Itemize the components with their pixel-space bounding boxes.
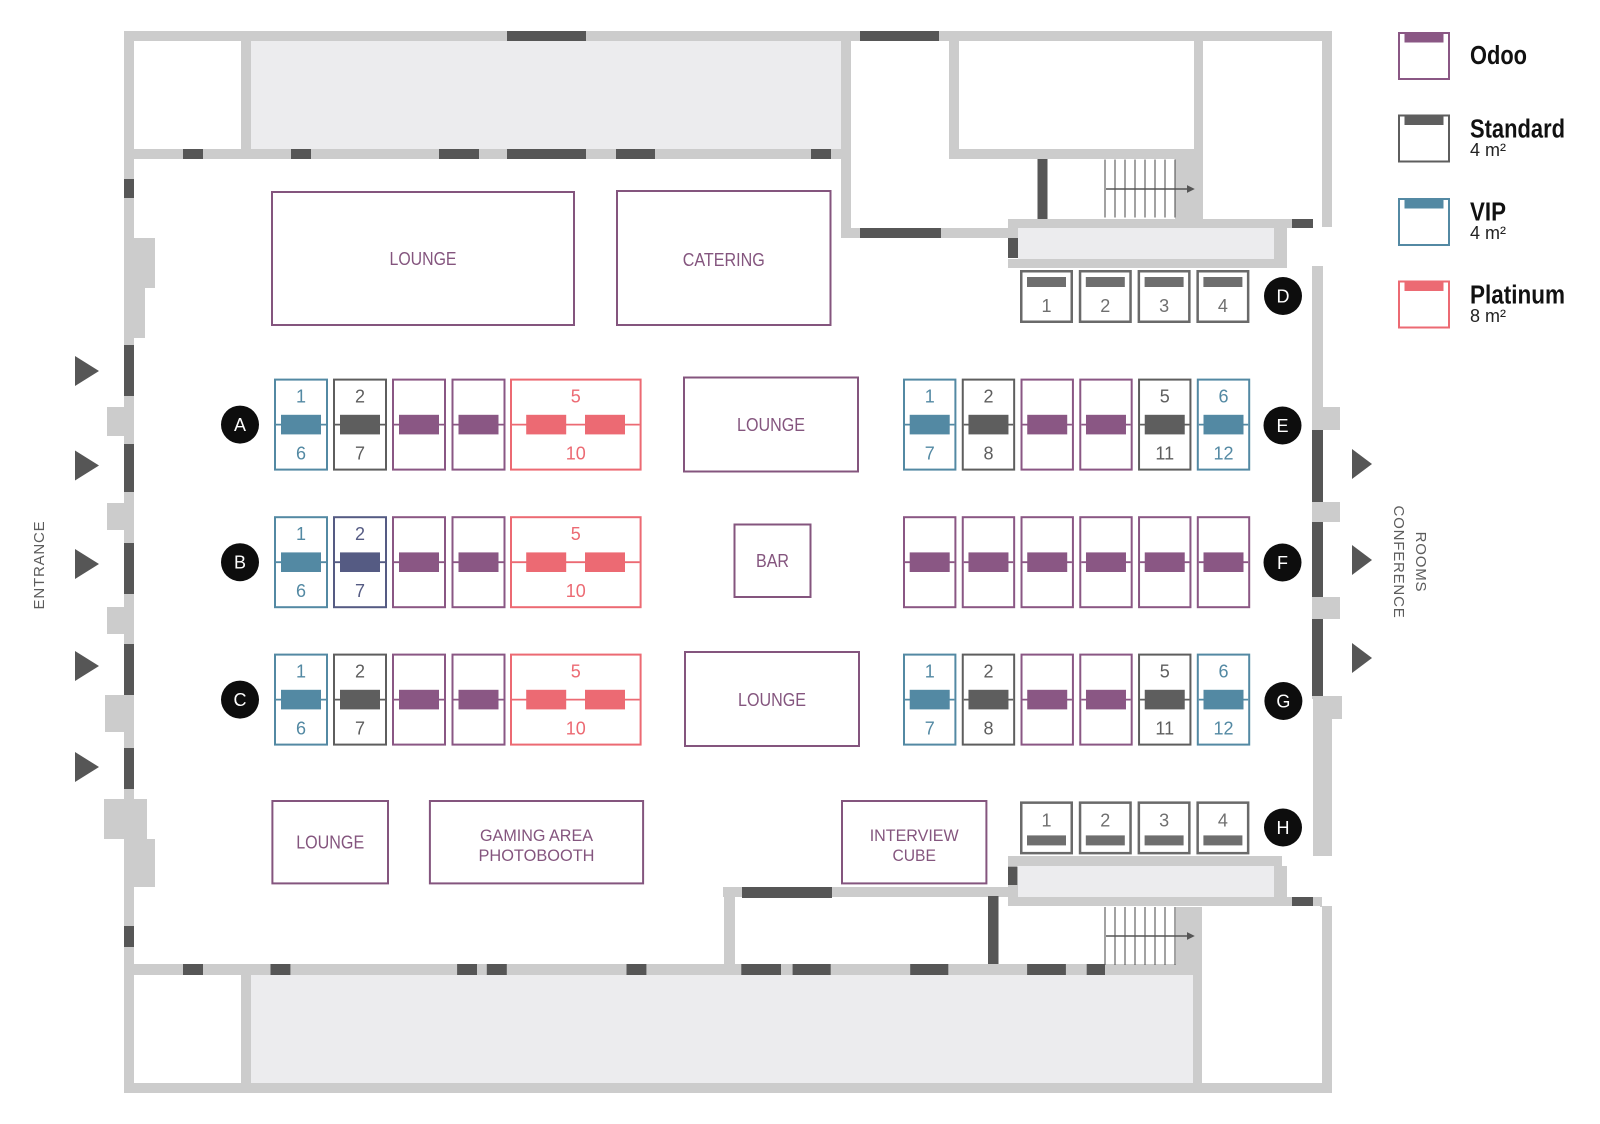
svg-text:2: 2 (983, 662, 993, 682)
svg-text:CATERING: CATERING (683, 249, 765, 270)
svg-text:5: 5 (1160, 387, 1170, 407)
svg-text:6: 6 (296, 581, 306, 601)
svg-text:5: 5 (571, 524, 581, 544)
svg-text:7: 7 (925, 719, 935, 739)
svg-text:2: 2 (355, 387, 365, 407)
svg-text:1: 1 (925, 662, 935, 682)
svg-text:4: 4 (1218, 810, 1228, 830)
svg-text:2: 2 (355, 524, 365, 544)
svg-text:B: B (234, 553, 246, 573)
svg-text:8 m²: 8 m² (1470, 306, 1506, 326)
svg-text:2: 2 (983, 387, 993, 407)
svg-text:6: 6 (296, 719, 306, 739)
svg-text:10: 10 (566, 719, 586, 739)
svg-text:1: 1 (1041, 296, 1051, 316)
svg-text:3: 3 (1159, 296, 1169, 316)
svg-text:7: 7 (355, 581, 365, 601)
svg-text:ENTRANCE: ENTRANCE (31, 521, 48, 610)
svg-text:H: H (1277, 818, 1290, 838)
svg-text:2: 2 (355, 662, 365, 682)
svg-text:GAMING AREA: GAMING AREA (480, 827, 593, 845)
svg-text:ROOMS: ROOMS (1412, 532, 1429, 593)
svg-text:D: D (1277, 287, 1290, 307)
svg-text:1: 1 (296, 662, 306, 682)
svg-text:PHOTOBOOTH: PHOTOBOOTH (479, 847, 595, 865)
svg-text:Odoo: Odoo (1470, 42, 1527, 70)
svg-text:F: F (1277, 553, 1288, 573)
svg-text:4: 4 (1218, 296, 1228, 316)
svg-text:7: 7 (355, 444, 365, 464)
svg-text:3: 3 (1159, 810, 1169, 830)
svg-text:BAR: BAR (756, 550, 789, 571)
svg-text:LOUNGE: LOUNGE (738, 689, 806, 710)
svg-text:5: 5 (571, 387, 581, 407)
svg-text:6: 6 (1218, 662, 1228, 682)
svg-text:G: G (1276, 692, 1290, 712)
svg-text:2: 2 (1100, 810, 1110, 830)
svg-text:11: 11 (1155, 444, 1174, 464)
svg-text:10: 10 (566, 444, 586, 464)
svg-text:Platinum: Platinum (1470, 281, 1565, 309)
svg-text:1: 1 (296, 387, 306, 407)
svg-text:11: 11 (1155, 719, 1174, 739)
svg-text:4 m²: 4 m² (1470, 223, 1506, 243)
svg-text:CONFERENCE: CONFERENCE (1390, 505, 1407, 618)
svg-text:C: C (234, 690, 247, 710)
svg-text:5: 5 (571, 662, 581, 682)
svg-text:7: 7 (355, 719, 365, 739)
svg-text:7: 7 (925, 444, 935, 464)
svg-text:12: 12 (1213, 444, 1233, 464)
svg-text:LOUNGE: LOUNGE (296, 832, 364, 853)
svg-text:LOUNGE: LOUNGE (390, 248, 457, 269)
svg-text:8: 8 (983, 719, 993, 739)
svg-text:INTERVIEW: INTERVIEW (870, 827, 960, 845)
svg-text:E: E (1276, 416, 1288, 436)
svg-text:1: 1 (925, 387, 935, 407)
svg-text:6: 6 (296, 444, 306, 464)
svg-text:Standard: Standard (1470, 115, 1565, 143)
svg-text:4 m²: 4 m² (1470, 140, 1506, 160)
svg-text:VIP: VIP (1470, 198, 1506, 226)
svg-text:5: 5 (1160, 662, 1170, 682)
svg-text:12: 12 (1213, 719, 1233, 739)
svg-text:6: 6 (1218, 387, 1228, 407)
svg-text:1: 1 (296, 524, 306, 544)
svg-text:10: 10 (566, 581, 586, 601)
svg-text:2: 2 (1100, 296, 1110, 316)
svg-text:1: 1 (1041, 810, 1051, 830)
svg-text:LOUNGE: LOUNGE (737, 414, 805, 435)
svg-text:8: 8 (983, 444, 993, 464)
svg-text:A: A (234, 415, 246, 435)
svg-text:CUBE: CUBE (892, 847, 936, 865)
